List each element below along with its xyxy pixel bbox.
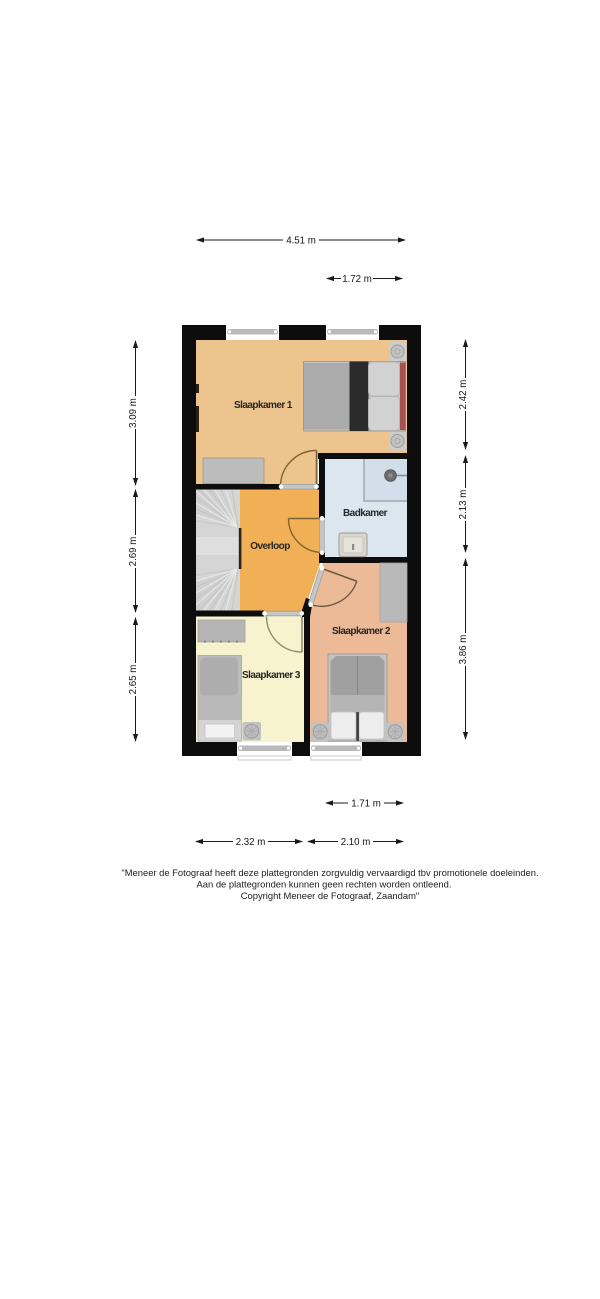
svg-text:Slaapkamer 3: Slaapkamer 3	[242, 670, 301, 681]
svg-text:"Meneer de Fotograaf heeft dez: "Meneer de Fotograaf heeft deze plattegr…	[121, 867, 538, 878]
svg-text:3.86 m: 3.86 m	[458, 635, 469, 665]
svg-text:2.13 m: 2.13 m	[458, 490, 469, 520]
svg-text:3.09 m: 3.09 m	[128, 398, 139, 428]
svg-text:1.71 m: 1.71 m	[351, 799, 381, 810]
svg-text:Slaapkamer 1: Slaapkamer 1	[234, 400, 293, 411]
svg-text:2.32 m: 2.32 m	[236, 837, 266, 848]
svg-text:2.42 m: 2.42 m	[458, 380, 469, 410]
svg-text:Overloop: Overloop	[250, 541, 290, 552]
svg-text:Copyright Meneer de Fotograaf,: Copyright Meneer de Fotograaf, Zaandam"	[241, 890, 419, 901]
svg-text:1.72 m: 1.72 m	[342, 274, 372, 285]
svg-text:2.69 m: 2.69 m	[128, 537, 139, 567]
svg-text:4.51 m: 4.51 m	[286, 236, 316, 247]
svg-text:Slaapkamer 2: Slaapkamer 2	[332, 626, 391, 637]
svg-text:2.10 m: 2.10 m	[341, 837, 371, 848]
svg-text:Aan de plattegronden kunnen ge: Aan de plattegronden kunnen geen rechten…	[197, 879, 452, 890]
svg-text:Badkamer: Badkamer	[343, 508, 388, 519]
svg-text:2.65 m: 2.65 m	[128, 665, 139, 695]
